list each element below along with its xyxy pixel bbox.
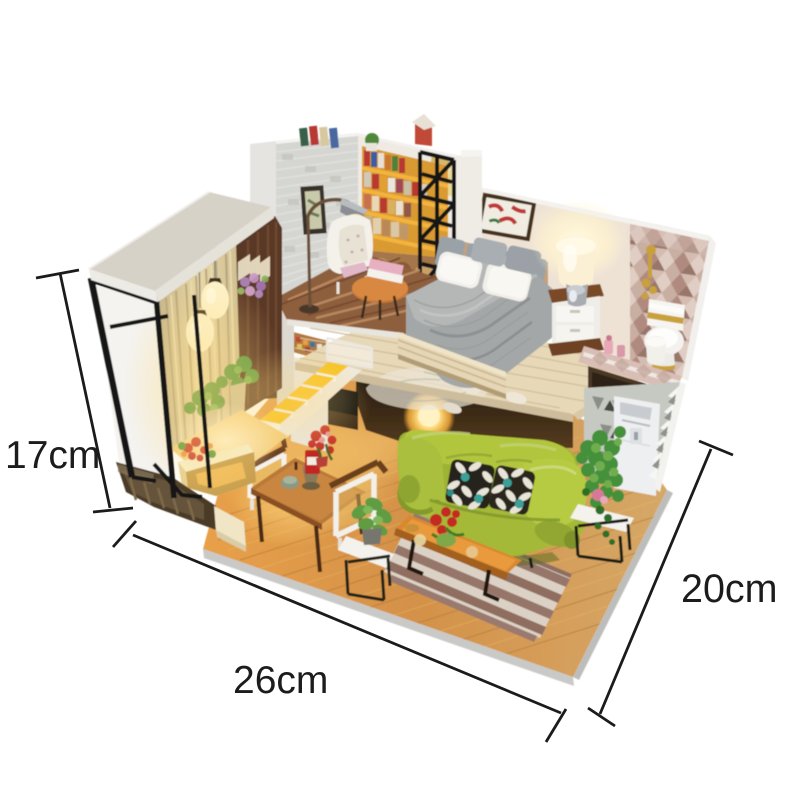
svg-text:26cm: 26cm — [233, 659, 328, 702]
svg-text:17cm: 17cm — [5, 434, 100, 477]
svg-text:20cm: 20cm — [681, 567, 778, 611]
